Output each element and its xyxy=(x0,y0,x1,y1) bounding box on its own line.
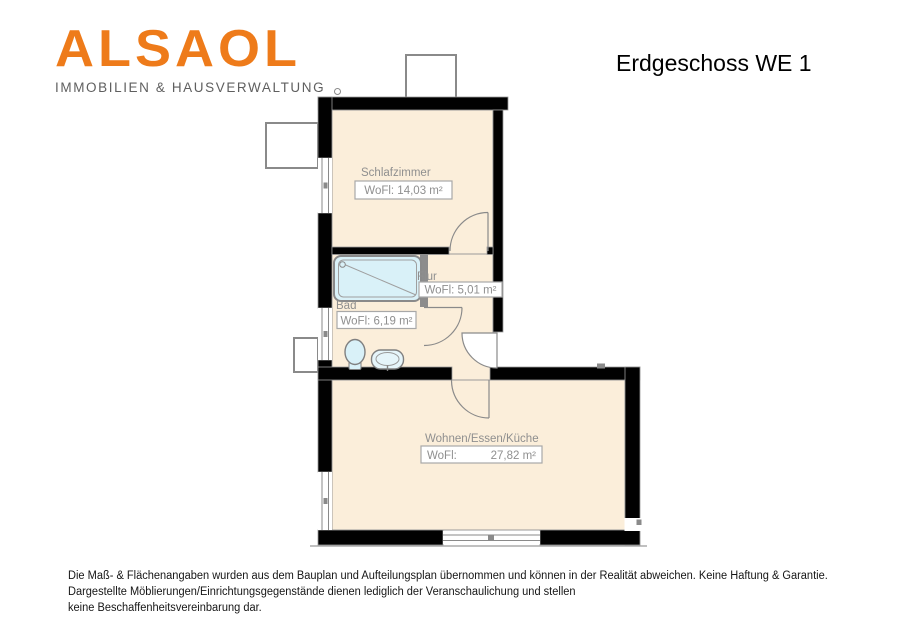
disclaimer-line-1: Die Maß- & Flächenangaben wurden aus dem… xyxy=(68,568,855,584)
sink-icon xyxy=(372,350,404,371)
area-label-wohnen-value: 27,82 m² xyxy=(491,450,537,462)
disclaimer-line-2: Dargestellte Möblierungen/Einrichtungsge… xyxy=(68,584,855,600)
wall-left-2 xyxy=(318,213,332,308)
neighbor-box xyxy=(266,123,318,168)
floor-plan: Schlafzimmer WoFl: 14,03 m² Flur WoFl: 5… xyxy=(250,45,650,550)
disclaimer-line-3: keine Beschaffenheitsvereinbarung dar. xyxy=(68,600,855,616)
window-wohnen-bottom xyxy=(443,531,540,544)
wall-joint-marker-right xyxy=(637,520,642,526)
left-protrusion-box xyxy=(294,338,318,372)
wall-right-upper xyxy=(493,110,503,332)
wall-bottom-left xyxy=(318,530,443,545)
room-label-wohnen: Wohnen/Essen/Küche xyxy=(425,433,539,445)
area-label-flur: WoFl: 5,01 m² xyxy=(425,285,497,297)
disclaimer: Die Maß- & Flächenangaben wurden aus dem… xyxy=(68,568,855,616)
wall-bottom-right xyxy=(540,530,640,545)
wall-joint-marker-top xyxy=(597,364,605,369)
room-label-schlafzimmer: Schlafzimmer xyxy=(361,167,431,179)
survey-point-marker xyxy=(335,89,341,95)
room-label-flur: Flur xyxy=(417,271,437,283)
area-label-schlafzimmer: WoFl: 14,03 m² xyxy=(364,185,443,197)
room-label-bad: Bad xyxy=(336,300,356,312)
area-label-bad: WoFl: 6,19 m² xyxy=(341,316,413,328)
window-bad xyxy=(318,308,332,360)
bathtub-icon xyxy=(334,256,421,301)
chimney-box xyxy=(406,55,456,98)
window-schlafzimmer xyxy=(318,158,332,213)
wall-wohnen-top xyxy=(490,367,640,380)
window-wohnen-left xyxy=(318,472,332,530)
wall-schlafzimmer-bottom xyxy=(332,247,449,255)
area-label-wohnen-prefix: WoFl: xyxy=(427,450,457,462)
wall-left-1 xyxy=(318,97,332,158)
wall-top xyxy=(318,97,508,110)
